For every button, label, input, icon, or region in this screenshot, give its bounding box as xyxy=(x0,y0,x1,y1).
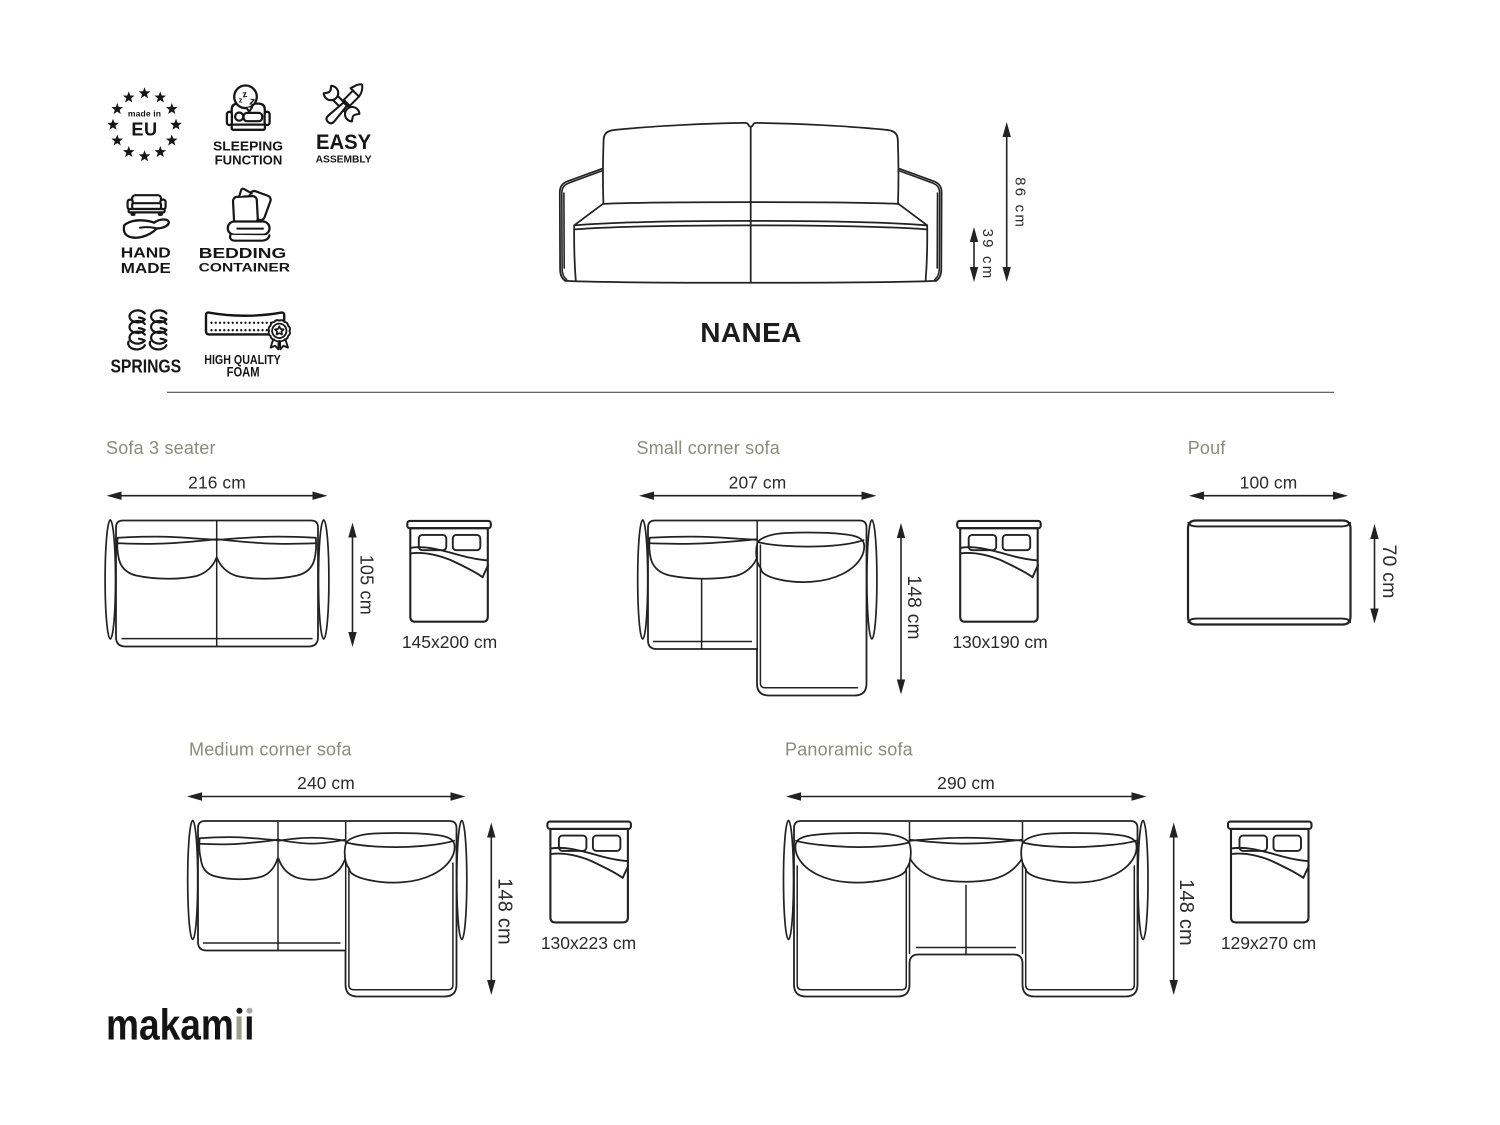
svg-text:216 cm: 216 cm xyxy=(188,472,246,492)
svg-text:86 cm: 86 cm xyxy=(1011,177,1028,229)
svg-text:Pouf: Pouf xyxy=(1188,438,1227,458)
svg-text:70 cm: 70 cm xyxy=(1378,544,1400,598)
svg-text:240 cm: 240 cm xyxy=(297,773,355,793)
svg-text:145x200 cm: 145x200 cm xyxy=(402,632,497,652)
svg-text:130x190 cm: 130x190 cm xyxy=(952,632,1047,652)
svg-text:EU: EU xyxy=(131,119,157,139)
svg-text:SPRINGS: SPRINGS xyxy=(110,355,181,376)
svg-text:290 cm: 290 cm xyxy=(937,773,995,793)
svg-text:Medium corner sofa: Medium corner sofa xyxy=(189,740,352,760)
svg-text:105 cm: 105 cm xyxy=(357,555,377,615)
svg-text:ASSEMBLY: ASSEMBLY xyxy=(316,155,372,166)
svg-text:130x223 cm: 130x223 cm xyxy=(541,933,636,953)
svg-text:148 cm: 148 cm xyxy=(494,878,516,945)
svg-text:MADE: MADE xyxy=(121,261,171,277)
svg-text:EASY: EASY xyxy=(316,131,371,154)
svg-text:129x270 cm: 129x270 cm xyxy=(1221,933,1316,953)
svg-text:148 cm: 148 cm xyxy=(903,575,924,639)
svg-text:made in: made in xyxy=(128,108,161,118)
svg-text:NANEA: NANEA xyxy=(700,317,802,348)
svg-text:148 cm: 148 cm xyxy=(1175,879,1197,946)
svg-text:FOAM: FOAM xyxy=(227,365,260,380)
svg-text:FUNCTION: FUNCTION xyxy=(215,153,283,168)
svg-text:207 cm: 207 cm xyxy=(729,472,787,492)
svg-text:Sofa 3 seater: Sofa 3 seater xyxy=(106,438,216,458)
svg-text:z: z xyxy=(239,96,243,105)
svg-text:100 cm: 100 cm xyxy=(1240,472,1298,492)
svg-text:39 cm: 39 cm xyxy=(979,229,996,281)
svg-text:SLEEPING: SLEEPING xyxy=(213,138,283,153)
svg-text:makamıı: makamıı xyxy=(106,999,254,1049)
svg-text:CONTAINER: CONTAINER xyxy=(199,261,291,275)
svg-text:HAND: HAND xyxy=(121,246,171,262)
svg-text:Small corner sofa: Small corner sofa xyxy=(637,438,781,458)
svg-text:Panoramic sofa: Panoramic sofa xyxy=(785,740,914,760)
